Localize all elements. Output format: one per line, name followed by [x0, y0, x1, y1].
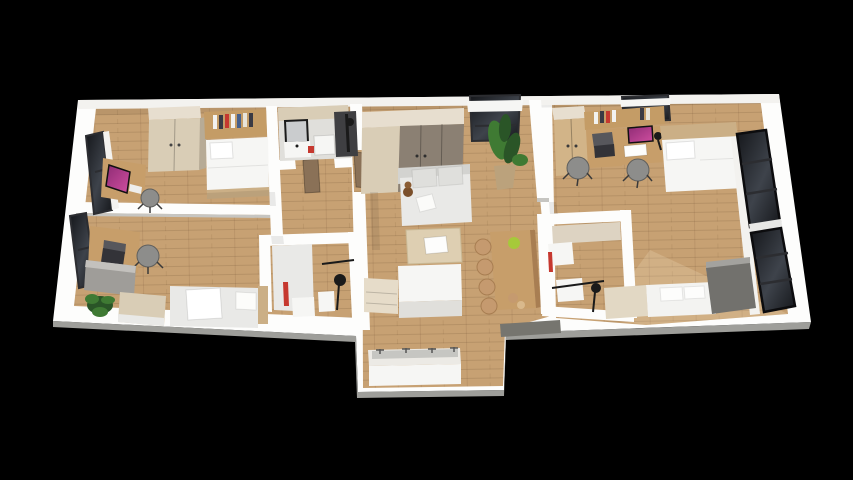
office-chair-4 [627, 159, 649, 181]
kitchen-counter-front [369, 364, 461, 386]
kitchen-shelf-unit [364, 278, 398, 314]
monitor-magenta-2 [628, 126, 653, 143]
open-door [303, 159, 320, 193]
sink-2 [318, 291, 335, 312]
render-canvas [0, 0, 853, 480]
bed-2-headboard [258, 286, 268, 324]
handle [416, 155, 419, 158]
handle [424, 155, 427, 158]
wall-bathroomA-bottom-r [334, 157, 354, 168]
vase-2 [517, 301, 525, 309]
papers-2 [624, 144, 647, 157]
faucet [296, 145, 299, 148]
papers [424, 236, 448, 254]
pillow-4 [660, 287, 683, 301]
kitchen-island-top [398, 264, 462, 302]
office-chair-2 [137, 245, 159, 267]
wardrobe-top [148, 106, 201, 120]
closet-doors-beige [361, 126, 400, 194]
vase [508, 293, 518, 303]
red-accent-stripe [283, 282, 289, 306]
pillow-5 [684, 286, 705, 299]
bathD-toilet [556, 278, 584, 302]
pillow [210, 142, 233, 159]
books [213, 113, 253, 129]
bed4-bench [604, 285, 648, 319]
bathD-shower-head [591, 283, 601, 293]
duvet [186, 288, 222, 320]
gray-unit [706, 263, 756, 314]
office-chair [141, 189, 159, 207]
shadow [271, 236, 284, 244]
bathroom-top [278, 105, 358, 161]
shadow [269, 192, 276, 206]
laptop2-base [594, 144, 615, 158]
handle [170, 144, 173, 147]
wardrobe2-top [552, 106, 586, 120]
handle [178, 144, 181, 147]
mirror [285, 120, 308, 143]
sofa-cushion [412, 168, 437, 188]
cabinet-white [314, 135, 335, 155]
roller-shade [467, 100, 523, 112]
sofa-cushion [438, 166, 463, 186]
sink [284, 141, 311, 158]
pillow-2 [236, 292, 256, 310]
pillow-3 [666, 141, 695, 160]
floor-plan-3d-render [0, 0, 853, 480]
wall-edge-2 [537, 198, 549, 202]
office-chair-3 [567, 157, 589, 179]
desk-lamp [654, 132, 662, 140]
handle [575, 145, 578, 148]
handle [567, 145, 570, 148]
teddy-bear-head [405, 182, 412, 189]
kitchen-island-front [399, 300, 462, 318]
shower-head-2 [334, 274, 346, 286]
red-accessory [308, 146, 314, 153]
shower-head [346, 118, 354, 126]
toilet [292, 297, 315, 317]
lime-bowl [508, 237, 520, 249]
